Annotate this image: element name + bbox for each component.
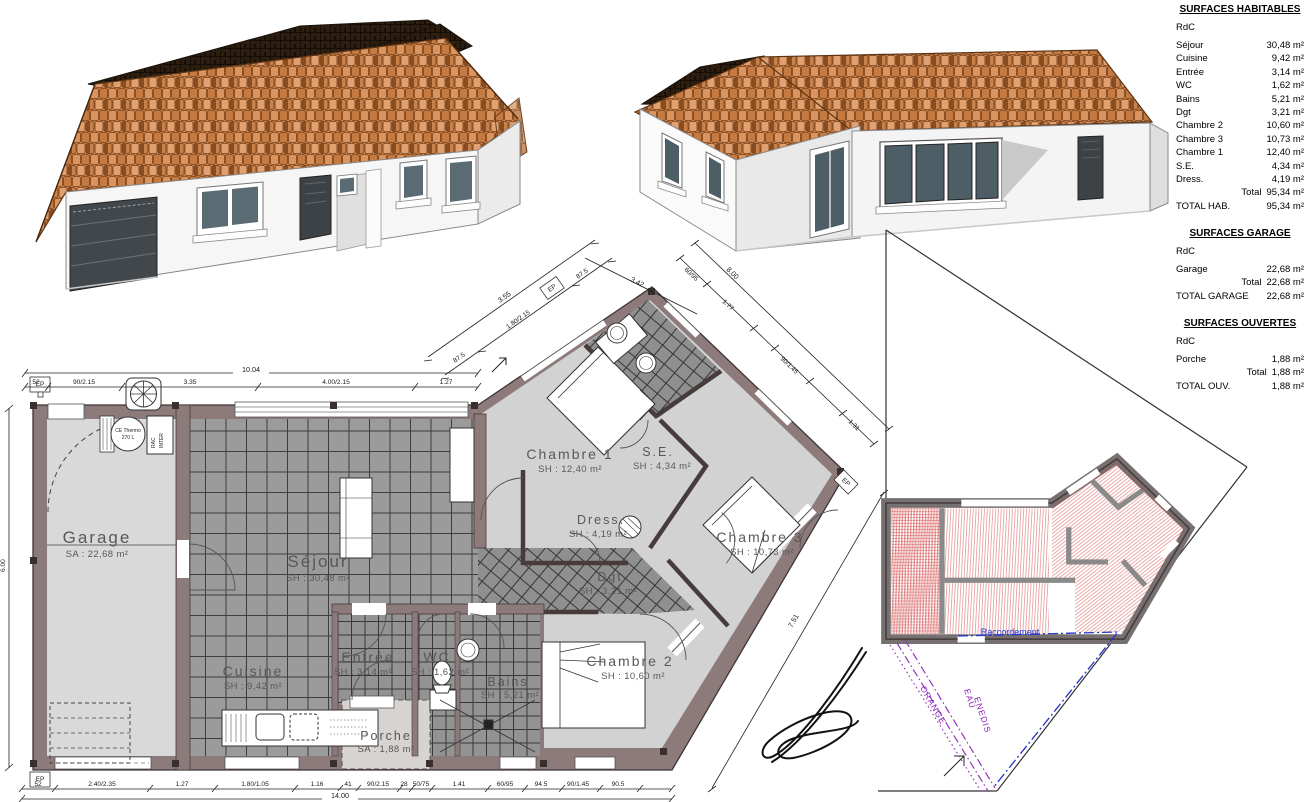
area-sejour: SH : 30,48 m² [286,573,350,584]
hab-row: Dgt3,21 m² [1176,106,1304,119]
rear-door-3d [1078,136,1103,200]
hab-row: Chambre 310,73 m² [1176,133,1304,146]
gar-total-row: Total22,68 m² [1176,276,1304,289]
hab-grand-row: TOTAL HAB.95,34 m² [1176,200,1304,213]
house-footprint [886,459,1189,639]
label-dgt: Dgt [597,570,622,584]
dim-left-total: 6.00 [0,559,7,572]
dim-bot-13: 90.5 [612,781,625,788]
label-chambre2: Chambre 2 [586,653,673,669]
hab-row: Chambre 210,60 m² [1176,119,1304,132]
window-3d-sejour [193,182,267,243]
ouv-grand-row: TOTAL OUV.1,88 m² [1176,380,1304,393]
hab-row: Bains5,21 m² [1176,93,1304,106]
dim-nw-total: 3.55 [496,289,513,304]
area-bains: SH : 5,21 m² [481,690,539,701]
dim-bottom-total: 14.00 [331,791,349,800]
dim-bot-4: 1.16 [311,781,324,788]
hab-row: Séjour30,48 m² [1176,39,1304,52]
hab-row: Cuisine9,42 m² [1176,52,1304,65]
hab-total-row: Total95,34 m² [1176,186,1304,199]
label-bains: Bains [487,675,528,689]
label-garage: Garage [63,528,132,547]
dim-se-total: 7.51 [786,612,801,629]
ouv-title: SURFACES OUVERTES [1176,318,1304,329]
orange-label: ORANGE [918,684,948,726]
house-3d-rear-view [635,50,1168,251]
dim-bot-2: 1.27 [176,781,189,788]
signature [763,648,866,762]
dim-bot-0: 52 [34,781,42,788]
hab-row: Dress.4,19 m² [1176,173,1304,186]
glass-door-3d [810,141,849,238]
dim-bot-12: 90/1.45 [567,781,589,788]
ouv-level: RdC [1176,336,1304,347]
area-dgt: SH : 3,21 m² [579,586,637,597]
label-se: S.E. [642,445,674,459]
garage-door-3d [70,197,157,291]
dim-bot-7: 28 [400,781,408,788]
area-porche: SA : 1,88 m² [357,744,414,755]
dim-ne-1: 1.77 [721,298,735,312]
dim-top-3: 4.00/2.15 [322,379,350,386]
hab-row: S.E.4,34 m² [1176,160,1304,173]
water-heater: CE Thermo 270 L [100,416,145,452]
label-chambre1: Chambre 1 [526,446,613,462]
dim-top-total: 10.04 [242,365,260,374]
utility-labels: ORANGE EAU ENEDIS [918,684,993,734]
dim-bot-6: 90/2.15 [367,781,389,788]
ouv-total-row: Total1,88 m² [1176,366,1304,379]
dim-top-4: 1.27 [440,379,453,386]
dim-ne-total: 8.00 [725,265,741,281]
hab-title: SURFACES HABITABLES [1176,4,1304,15]
hab-level: RdC [1176,22,1304,33]
area-wc: SH : 1,62 m² [411,667,469,678]
area-se: SH : 4,34 m² [633,461,691,472]
utility-lines [890,632,1118,793]
site-plan: ORANGE EAU ENEDIS Raccordement [878,230,1247,793]
area-cuisine: SH : 9,42 m² [224,681,282,692]
label-entree: Entrée [341,649,394,665]
label-chambre3: Chambre 3 [716,529,803,545]
dim-bot-10: 60/95 [497,781,514,788]
dim-ne-0: 60/95 [683,266,700,283]
surfaces-garage-panel: SURFACES GARAGE RdC Garage22,68 m² Total… [1176,228,1304,303]
rac-label: RAC [151,437,157,448]
drawing-canvas: CE Thermo 270 L RAC INTER [0,0,1307,802]
area-entree: SH : 3,14 m² [334,667,392,678]
label-dress: Dress. [577,513,625,527]
dim-top-1: 90/2.15 [73,379,95,386]
dim-bot-1: 2.40/2.35 [88,781,116,788]
label-wc: WC [423,649,450,665]
inter-label: INTER [159,433,165,448]
gar-grand-row: TOTAL GARAGE22,68 m² [1176,290,1304,303]
dim-nw-0: 87.5 [452,351,467,364]
dim-bot-11: 94.5 [535,781,548,788]
label-sejour: Séjour [287,552,348,571]
dim-nw-1: 1.80/2.15 [505,309,532,331]
area-chambre2: SH : 10,60 m² [601,671,665,682]
area-chambre3: SH : 10,73 m² [730,547,794,558]
gar-title: SURFACES GARAGE [1176,228,1304,239]
surfaces-ouvertes-panel: SURFACES OUVERTES RdC Porche1,88 m² Tota… [1176,318,1304,393]
water-heater-label: CE Thermo [115,428,141,434]
dim-ne-3: 1.31 [847,418,861,432]
area-dress: SH : 4,19 m² [569,529,627,540]
vmc-fan-icon [126,378,161,410]
gar-level: RdC [1176,246,1304,257]
gar-row: Garage22,68 m² [1176,263,1304,276]
enedis-label: ENEDIS [972,696,993,735]
dim-bot-3: 1.80/1.05 [241,781,269,788]
label-porche: Porche [360,729,412,743]
house-3d-front-view [36,20,527,291]
label-cuisine: Cuisine [223,663,284,679]
dim-bot-9: 1.41 [453,781,466,788]
hab-row: Chambre 112,40 m² [1176,146,1304,159]
raccordement-note: Raccordement [981,627,1040,637]
hab-row: WC1,62 m² [1176,79,1304,92]
rac-inter-box: RAC INTER [147,416,173,454]
dim-top-2: 3.35 [184,379,197,386]
architect-sheet: CE Thermo 270 L RAC INTER [0,0,1307,802]
hab-row: Entrée3,14 m² [1176,66,1304,79]
dim-ne-2: 90/1.45 [779,355,800,376]
surfaces-habitables-panel: SURFACES HABITABLES RdC Séjour30,48 m² C… [1176,4,1304,213]
garage-floor [47,419,176,756]
ouv-row: Porche1,88 m² [1176,353,1304,366]
dim-bot-5: 41 [344,781,352,788]
area-chambre1: SH : 12,40 m² [538,464,602,475]
water-heater-capacity: 270 L [122,435,135,441]
dim-top-0: 52 [32,379,40,386]
dim-bot-8: 50/75 [413,781,430,788]
area-garage: SA : 22,68 m² [66,549,129,560]
